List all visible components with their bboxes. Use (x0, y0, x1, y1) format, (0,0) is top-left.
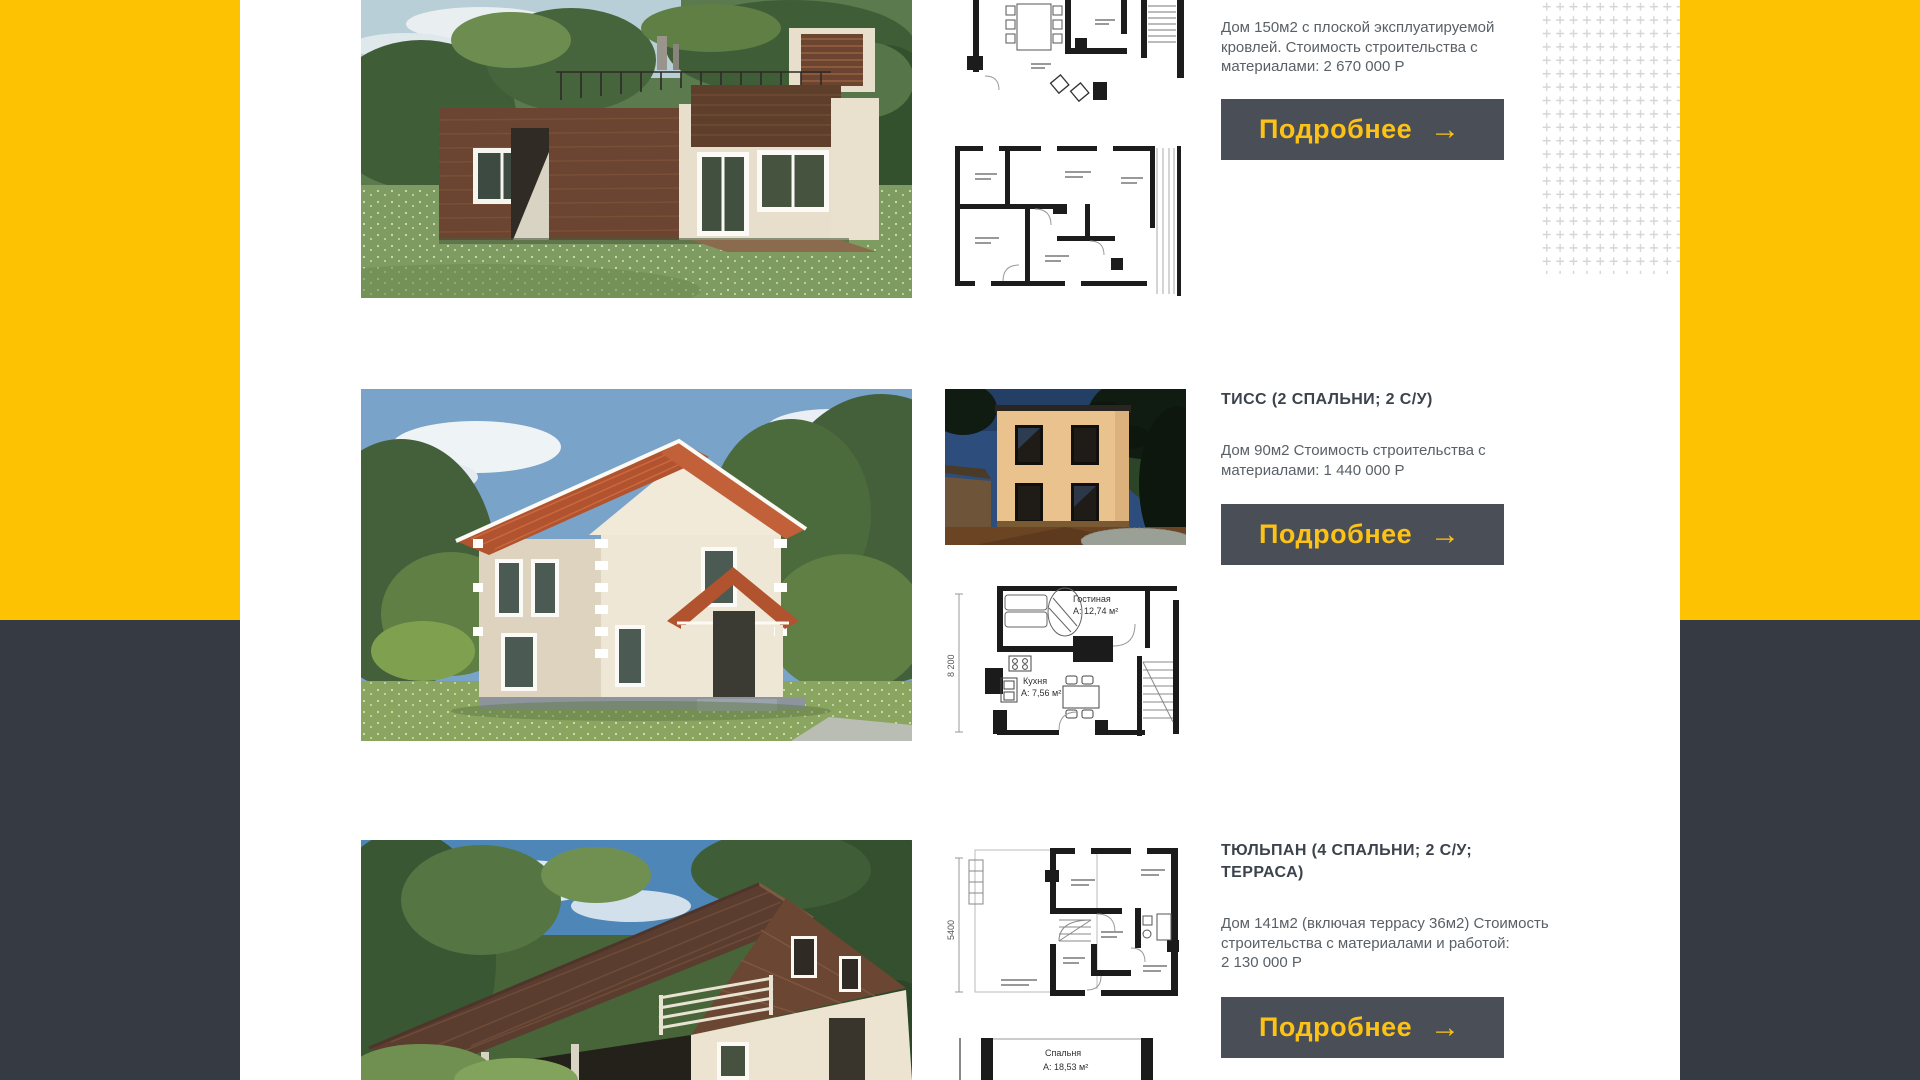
plan-dimension-label: 8 200 (946, 654, 956, 677)
left-accent-bar-yellow (0, 0, 240, 620)
house-render-image-tiss (361, 389, 912, 741)
house-render-image-flat-roof (361, 0, 912, 298)
floor-plan-image-1b (945, 138, 1186, 300)
plan-room-area-bedroom: А: 18,53 м² (1043, 1062, 1088, 1072)
right-accent-bar-yellow (1680, 0, 1920, 620)
plan-room-area-living: А: 12,74 м² (1073, 606, 1118, 616)
details-button-label: Подробнее (1259, 1012, 1412, 1043)
house-render-image-tulpan (361, 840, 912, 1080)
details-button[interactable]: Подробнее → (1221, 99, 1504, 160)
floor-plan-image-1a (945, 0, 1186, 103)
right-accent-bar-dark (1680, 620, 1920, 1080)
plan-room-label-bedroom: Спальня (1045, 1048, 1081, 1058)
projects-page: Дом 150м2 с плоской эксплуатируемой кров… (0, 0, 1920, 1080)
floor-plan-image-tulpan-a: 5400 (945, 840, 1186, 1004)
arrow-right-icon: → (1430, 1013, 1460, 1043)
floor-plan-image-tiss: 8 200 (945, 582, 1186, 741)
project-title: ТЮЛЬПАН (4 СПАЛЬНИ; 2 С/У; ТЕРРАСА) (1221, 840, 1561, 884)
details-button[interactable]: Подробнее → (1221, 997, 1504, 1058)
plan-dimension-label: 5400 (946, 920, 956, 940)
floor-plan-image-tulpan-b: Спальня А: 18,53 м² (945, 1030, 1186, 1080)
project-description: Дом 150м2 с плоской эксплуатируемой кров… (1221, 18, 1566, 77)
project-title: ТИСС (2 СПАЛЬНИ; 2 С/У) (1221, 389, 1561, 411)
details-button[interactable]: Подробнее → (1221, 504, 1504, 565)
details-button-label: Подробнее (1259, 519, 1412, 550)
details-button-label: Подробнее (1259, 114, 1412, 145)
construction-photo-tiss (945, 389, 1186, 545)
arrow-right-icon: → (1430, 115, 1460, 145)
project-description: Дом 90м2 Стоимость строительства с матер… (1221, 441, 1566, 480)
arrow-right-icon: → (1430, 520, 1460, 550)
plan-room-area-kitchen: А: 7,56 м² (1021, 688, 1061, 698)
plan-room-label-living: Гостиная (1073, 594, 1111, 604)
plan-room-label-kitchen: Кухня (1023, 676, 1047, 686)
project-description: Дом 141м2 (включая террасу 36м2) Стоимос… (1221, 914, 1566, 973)
left-accent-bar-dark (0, 620, 240, 1080)
